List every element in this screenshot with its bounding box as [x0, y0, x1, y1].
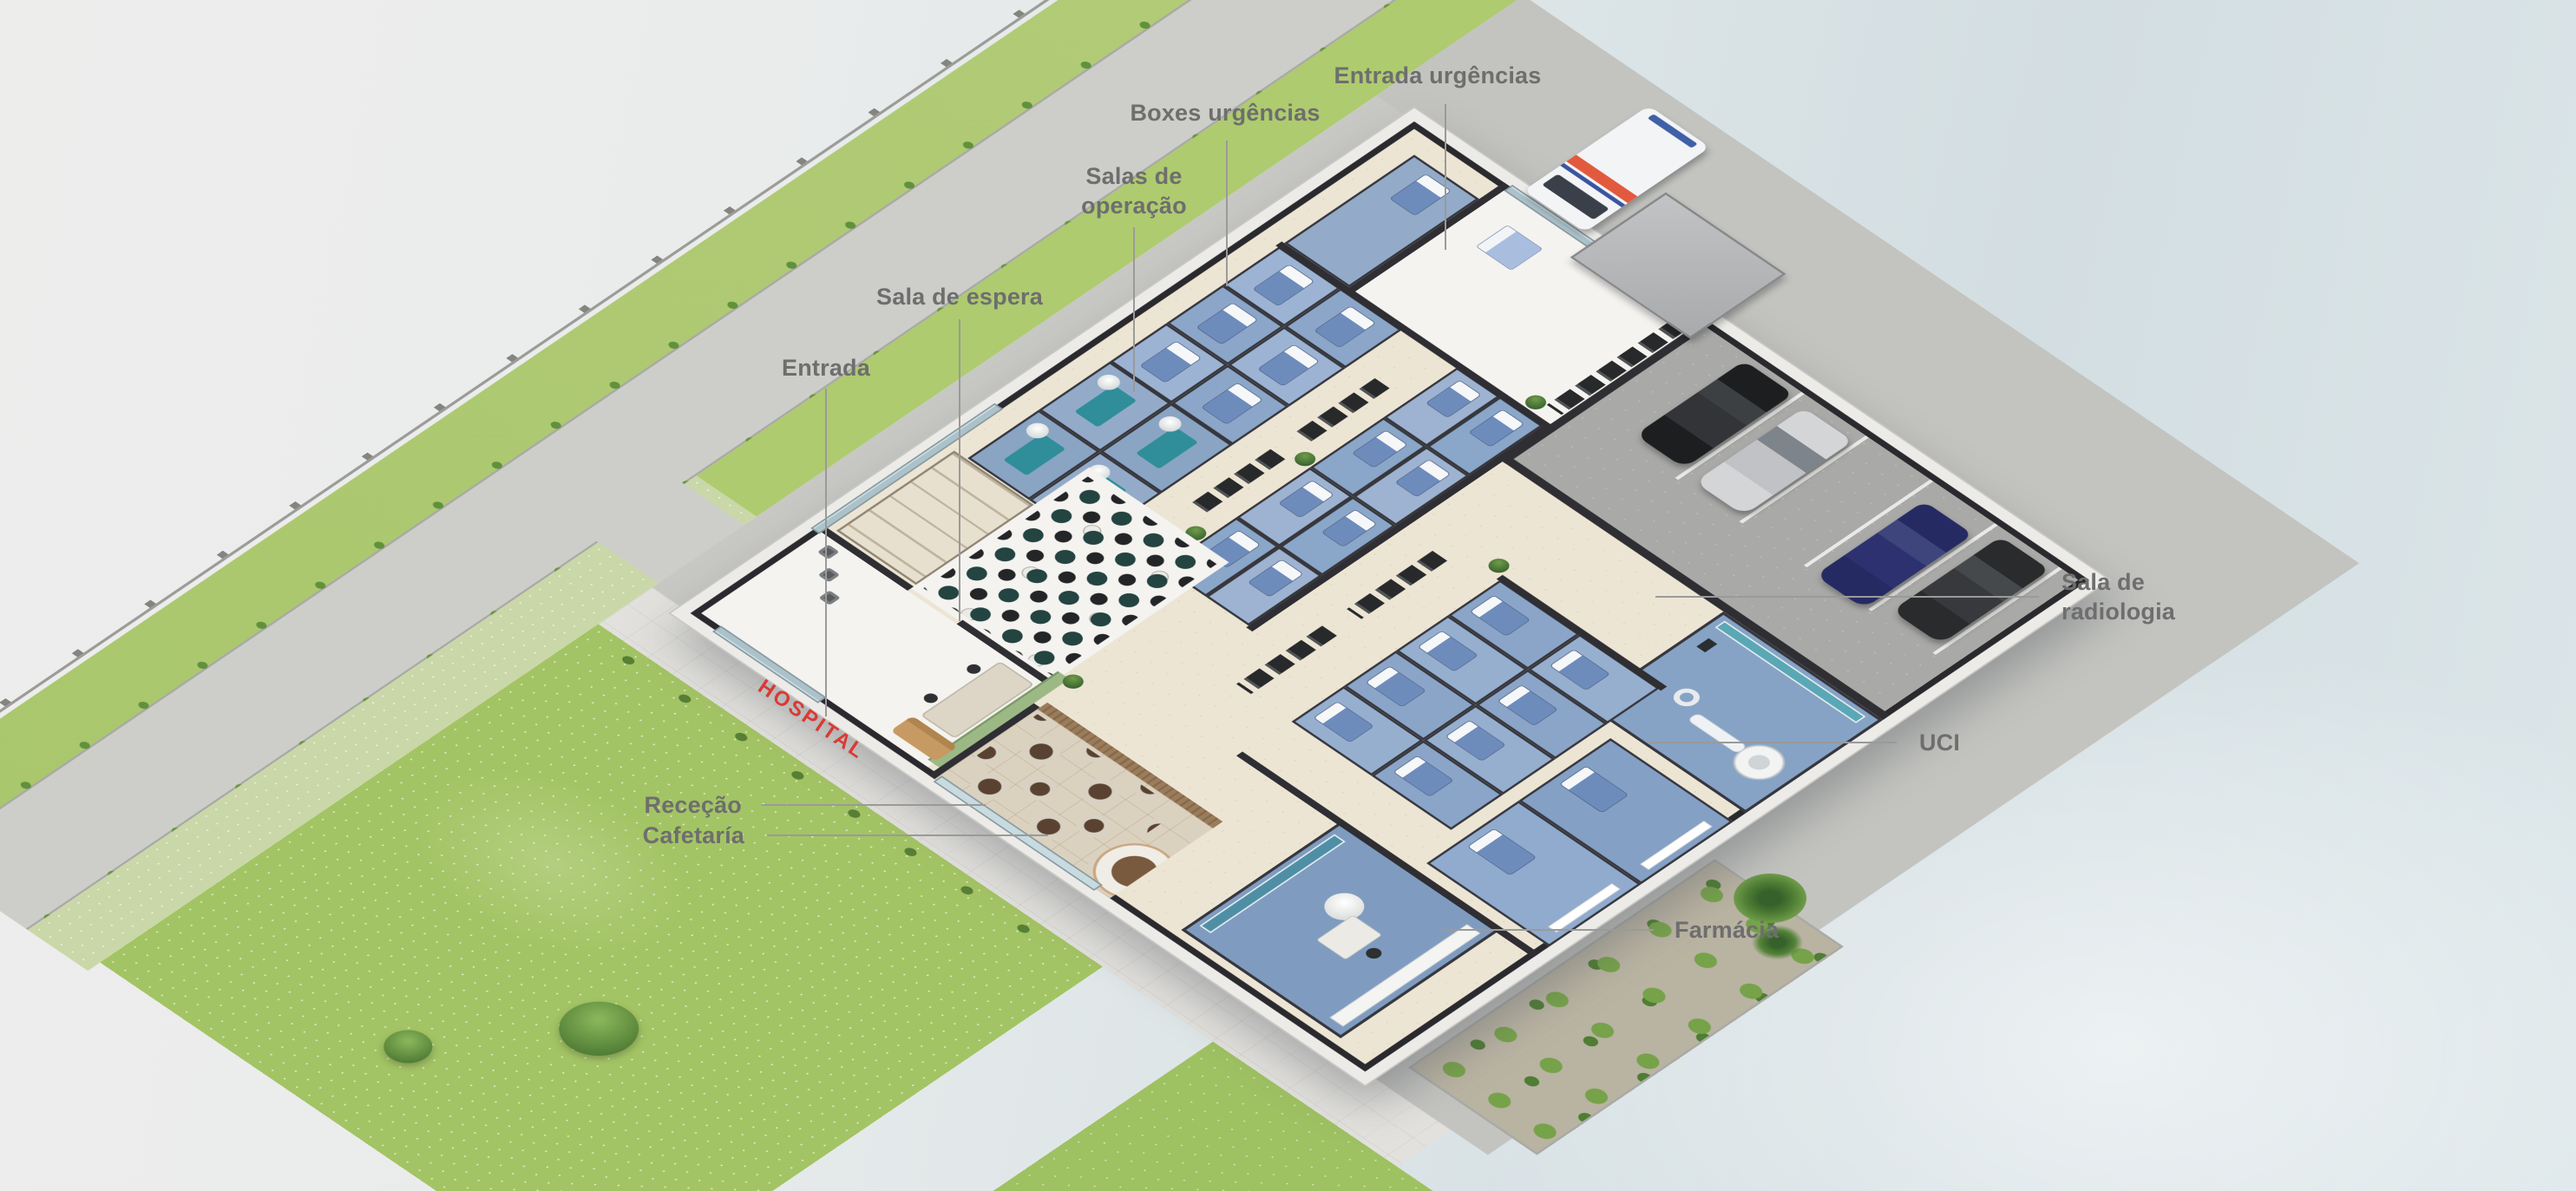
label-salas-de-operacao: Salas de operação	[1081, 161, 1187, 220]
label-boxes-urgencias: Boxes urgências	[1130, 98, 1320, 128]
label-entrada-urgencias: Entrada urgências	[1334, 61, 1542, 90]
label-uci: UCI	[1919, 728, 1960, 757]
label-entrada: Entrada	[782, 353, 870, 383]
label-cafetaria: Cafetaría	[643, 821, 744, 850]
label-sala-de-radiologia: Sala de radiologia	[2061, 567, 2175, 626]
label-farmacia: Farmácia	[1675, 915, 1779, 945]
leader-lines	[0, 0, 2576, 1191]
label-line: Salas de	[1085, 163, 1182, 189]
label-line: Sala de	[2061, 569, 2145, 595]
label-line: operação	[1081, 193, 1187, 219]
hospital-floorplan-illustration: Entrada urgências Boxes urgências Salas …	[0, 0, 2576, 1191]
label-line: radiologia	[2061, 599, 2175, 625]
label-sala-de-espera: Sala de espera	[876, 282, 1043, 311]
label-rececao: Receção	[645, 790, 742, 820]
